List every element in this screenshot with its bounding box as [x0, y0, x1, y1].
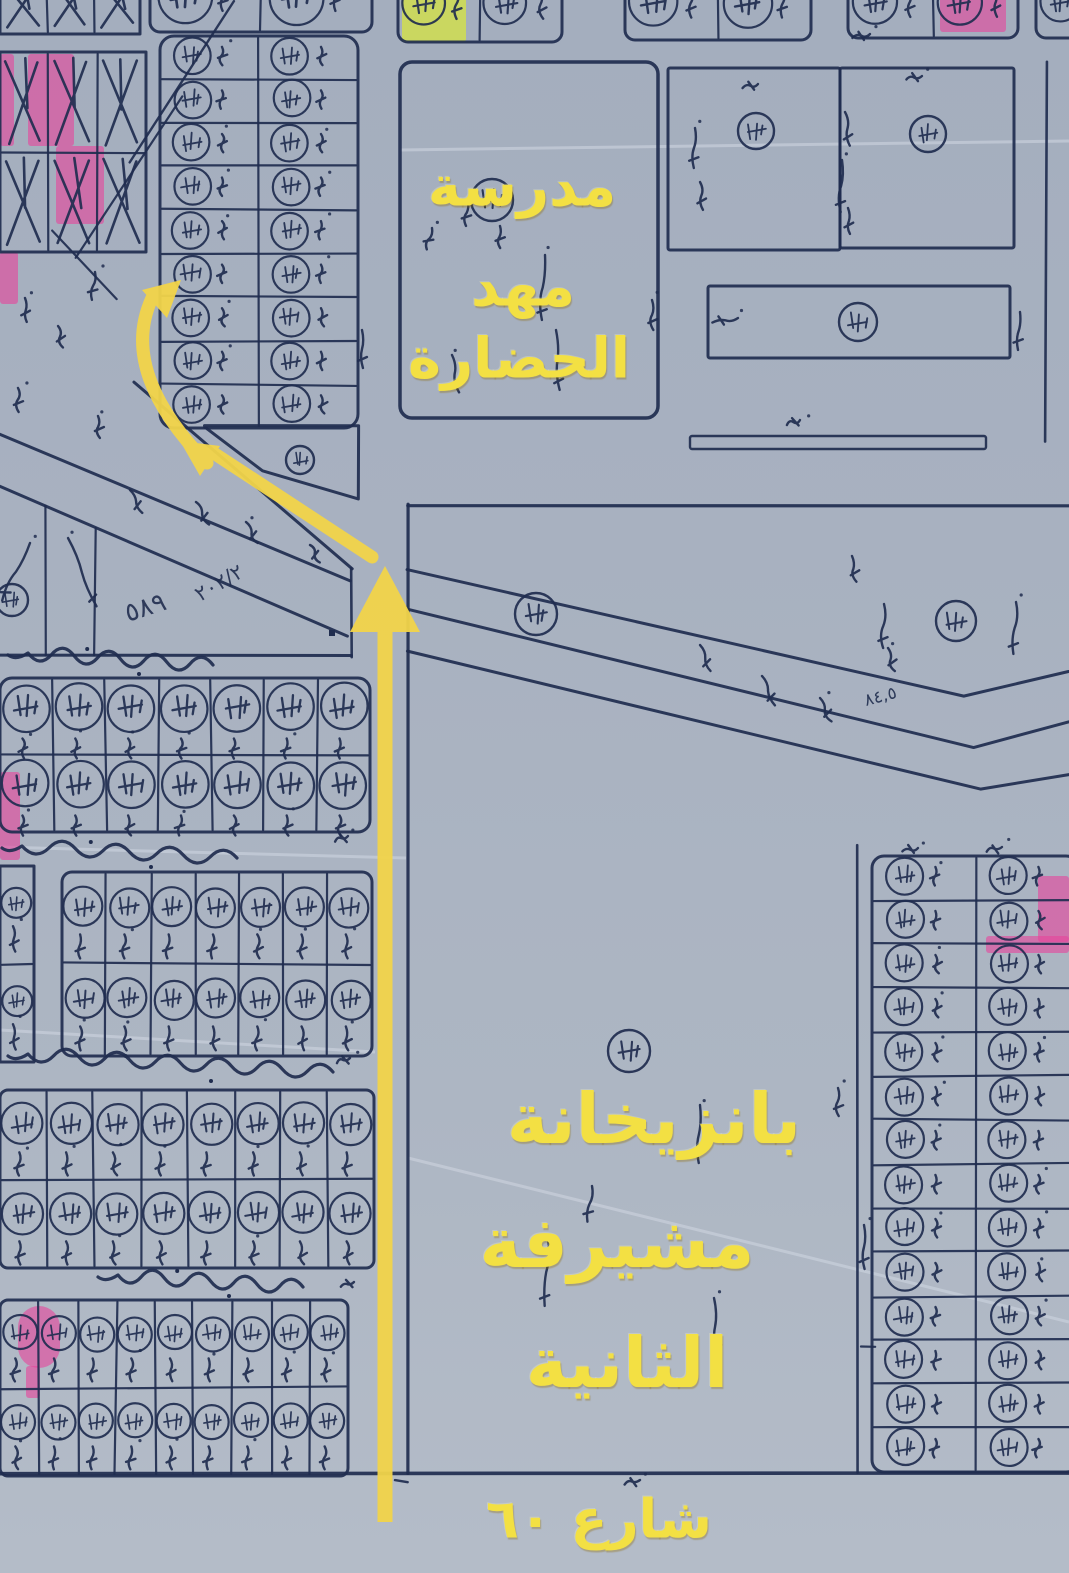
station-label-line1: بانزيخانة: [507, 1078, 801, 1160]
street-60-label: شارع ٦٠: [486, 1488, 712, 1551]
station-label-line2: مشيرفة: [480, 1202, 755, 1284]
route-arrow-curved: [143, 298, 207, 463]
school-label-line3: الحضارة: [408, 327, 630, 392]
route-arrow-diagonal: [212, 452, 372, 557]
school-label-line2: مهد: [471, 255, 575, 320]
route-arrow-group: [142, 280, 420, 1522]
route-arrow-vertical-head: [350, 566, 420, 632]
school-label-line1: مدرسة: [428, 155, 616, 220]
station-label-line3: الثانية: [526, 1322, 728, 1404]
cadastral-map-photo: ٥٨٩٢٠٢/٢٨٤,٥ مدرسة مهد الحضارة بانزيخانة…: [0, 0, 1069, 1573]
